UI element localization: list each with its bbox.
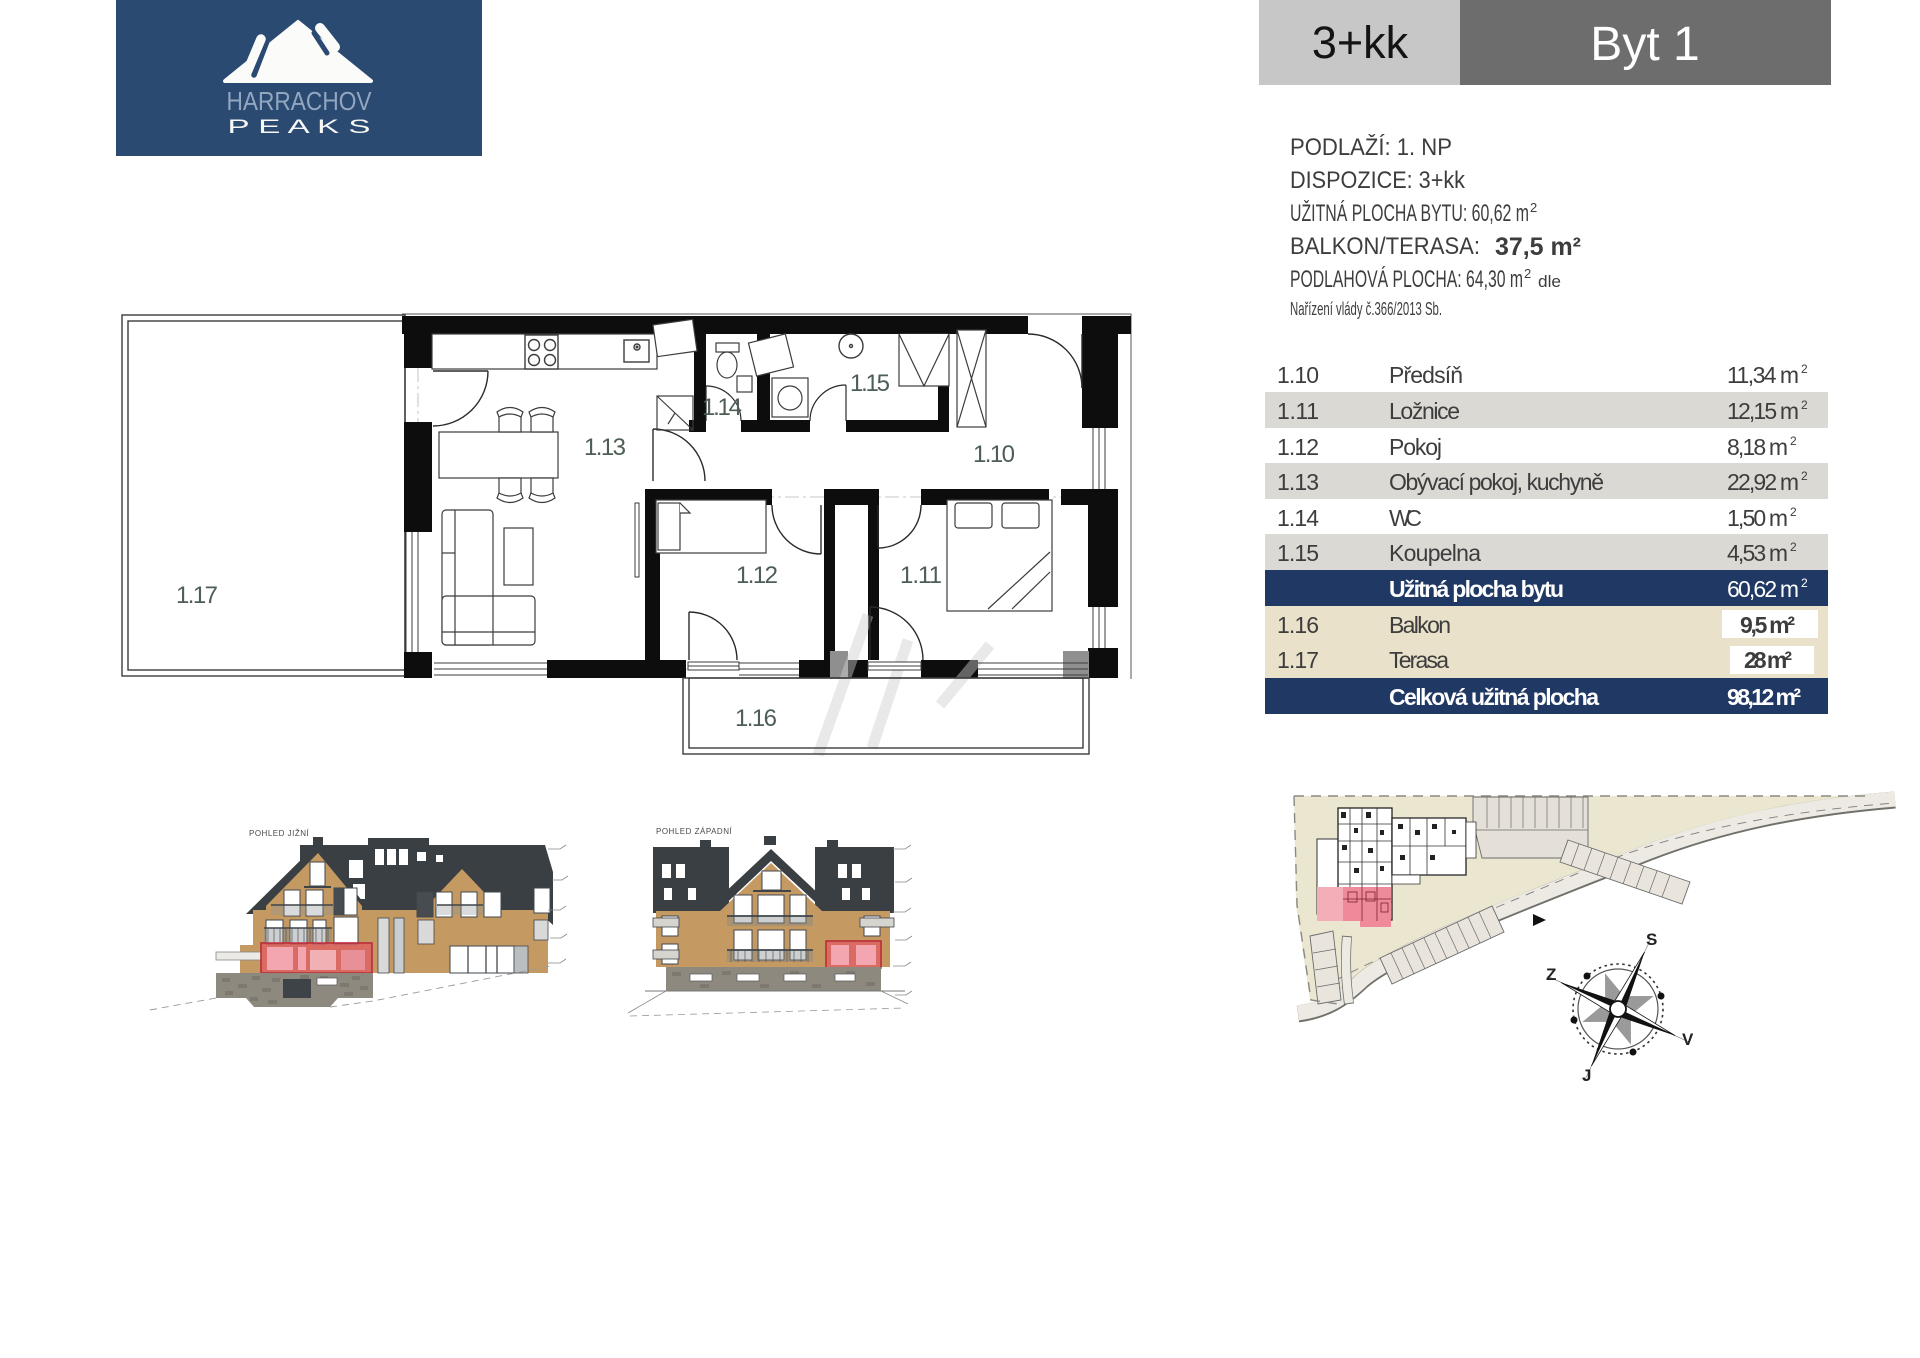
svg-text:PODLAHOVÁ PLOCHA: 64,30 m: PODLAHOVÁ PLOCHA: 64,30 m (1290, 266, 1523, 293)
svg-text:9,5 m²: 9,5 m² (1740, 612, 1795, 638)
svg-text:1.11: 1.11 (900, 562, 942, 589)
svg-text:1.17: 1.17 (1277, 647, 1319, 673)
svg-text:J: J (1582, 1066, 1591, 1085)
svg-text:V: V (1682, 1030, 1694, 1049)
svg-text:POHLED ZÁPADNÍ: POHLED ZÁPADNÍ (656, 827, 732, 836)
svg-text:1,50 m: 1,50 m (1727, 505, 1788, 531)
svg-text:HARRACHOV: HARRACHOV (227, 86, 373, 116)
svg-text:Koupelna: Koupelna (1389, 540, 1481, 566)
svg-text:Byt 1: Byt 1 (1590, 18, 1699, 71)
svg-text:Balkon: Balkon (1389, 612, 1451, 638)
svg-text:2: 2 (1790, 434, 1797, 448)
svg-text:28 m²: 28 m² (1744, 647, 1792, 673)
svg-text:P E A K S: P E A K S (228, 117, 371, 138)
svg-text:2: 2 (1524, 266, 1531, 281)
svg-text:1.14: 1.14 (1277, 505, 1319, 531)
svg-text:dle: dle (1538, 272, 1561, 291)
svg-text:2: 2 (1801, 469, 1808, 483)
svg-text:8,18 m: 8,18 m (1727, 434, 1788, 460)
svg-text:1.13: 1.13 (1277, 469, 1319, 495)
svg-text:2: 2 (1801, 576, 1808, 590)
svg-text:Ložnice: Ložnice (1389, 398, 1460, 424)
svg-text:2: 2 (1801, 362, 1808, 376)
svg-text:Terasa: Terasa (1389, 647, 1449, 673)
svg-text:1.11: 1.11 (1277, 398, 1319, 424)
svg-text:22,92 m: 22,92 m (1727, 469, 1799, 495)
svg-text:37,5 m²: 37,5 m² (1495, 233, 1581, 261)
svg-text:1.17: 1.17 (176, 582, 218, 609)
svg-text:1.16: 1.16 (1277, 612, 1319, 638)
svg-text:1.10: 1.10 (973, 441, 1015, 468)
svg-text:Předsíň: Předsíň (1389, 362, 1463, 388)
svg-text:POHLED JIŽNÍ: POHLED JIŽNÍ (249, 829, 310, 838)
svg-text:Nařízení vlády č.366/2013 Sb.: Nařízení vlády č.366/2013 Sb. (1290, 299, 1442, 319)
svg-text:2: 2 (1790, 505, 1797, 519)
svg-text:Z: Z (1546, 965, 1556, 984)
svg-text:2: 2 (1790, 540, 1797, 554)
svg-text:WC: WC (1389, 505, 1422, 531)
svg-text:4,53 m: 4,53 m (1727, 540, 1788, 566)
svg-text:1.13: 1.13 (584, 434, 626, 461)
svg-text:1.10: 1.10 (1277, 362, 1319, 388)
svg-text:1.12: 1.12 (736, 562, 778, 589)
svg-text:1.16: 1.16 (735, 705, 777, 732)
svg-text:11,34 m: 11,34 m (1727, 362, 1799, 388)
svg-text:S: S (1646, 930, 1657, 949)
svg-text:BALKON/TERASA:: BALKON/TERASA: (1290, 233, 1480, 260)
svg-text:12,15 m: 12,15 m (1727, 398, 1799, 424)
svg-text:Obývací pokoj, kuchyně: Obývací pokoj, kuchyně (1389, 469, 1604, 495)
svg-text:2: 2 (1801, 398, 1808, 412)
svg-text:DISPOZICE: 3+kk: DISPOZICE: 3+kk (1290, 167, 1466, 194)
svg-text:Celková užitná plocha: Celková užitná plocha (1389, 684, 1599, 710)
svg-text:3+kk: 3+kk (1312, 17, 1409, 68)
svg-text:Pokoj: Pokoj (1389, 434, 1442, 460)
svg-text:98,12 m²: 98,12 m² (1727, 684, 1801, 710)
svg-text:1.15: 1.15 (1277, 540, 1319, 566)
svg-text:2: 2 (1530, 200, 1537, 215)
svg-text:1.12: 1.12 (1277, 434, 1319, 460)
svg-text:UŽITNÁ PLOCHA BYTU: 60,62 m: UŽITNÁ PLOCHA BYTU: 60,62 m (1290, 200, 1529, 227)
svg-text:Užitná plocha bytu: Užitná plocha bytu (1389, 576, 1564, 602)
svg-text:PODLAŽÍ: 1. NP: PODLAŽÍ: 1. NP (1290, 134, 1452, 161)
svg-text:60,62 m: 60,62 m (1727, 576, 1799, 602)
svg-text:1.15: 1.15 (850, 370, 890, 397)
svg-text:1.14: 1.14 (702, 394, 742, 421)
